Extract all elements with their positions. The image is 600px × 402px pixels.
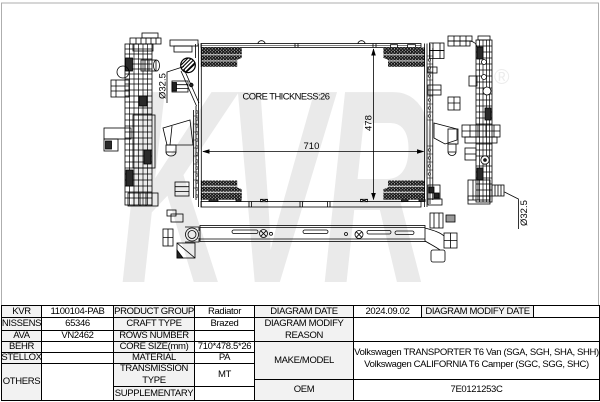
svg-text:Ø32.5: Ø32.5 bbox=[519, 200, 530, 226]
svg-text:478: 478 bbox=[364, 115, 375, 131]
svg-text:CORE THICKNESS:26: CORE THICKNESS:26 bbox=[243, 91, 330, 102]
svg-text:Ø32.5: Ø32.5 bbox=[158, 73, 169, 99]
svg-text:710: 710 bbox=[304, 141, 320, 152]
svg-text:®: ® bbox=[494, 66, 510, 89]
